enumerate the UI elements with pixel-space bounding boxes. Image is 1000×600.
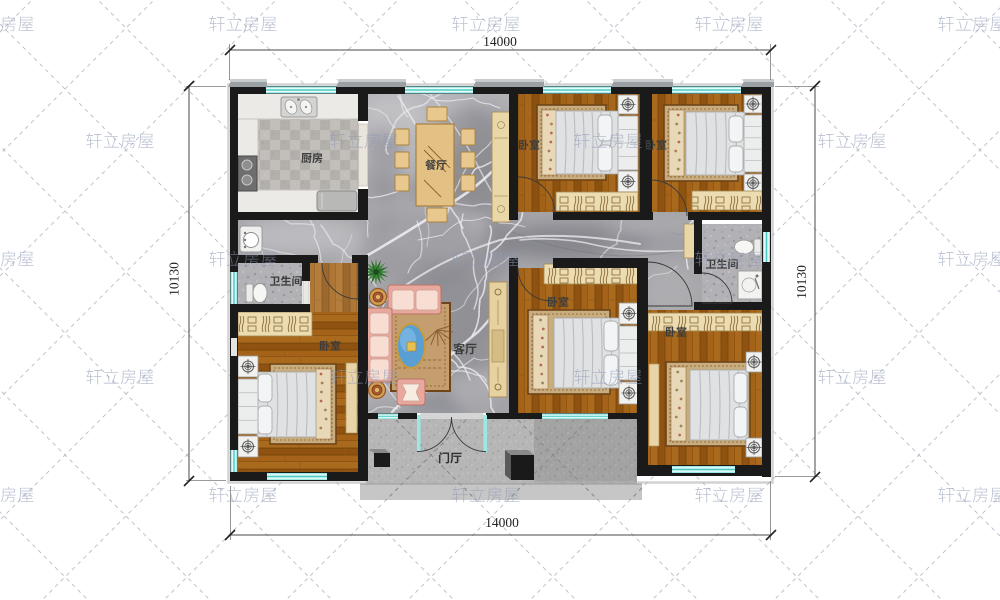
svg-text:14000: 14000 [483, 34, 517, 49]
svg-text:10130: 10130 [167, 262, 182, 296]
svg-text:14000: 14000 [485, 515, 519, 530]
svg-text:10130: 10130 [794, 265, 809, 299]
